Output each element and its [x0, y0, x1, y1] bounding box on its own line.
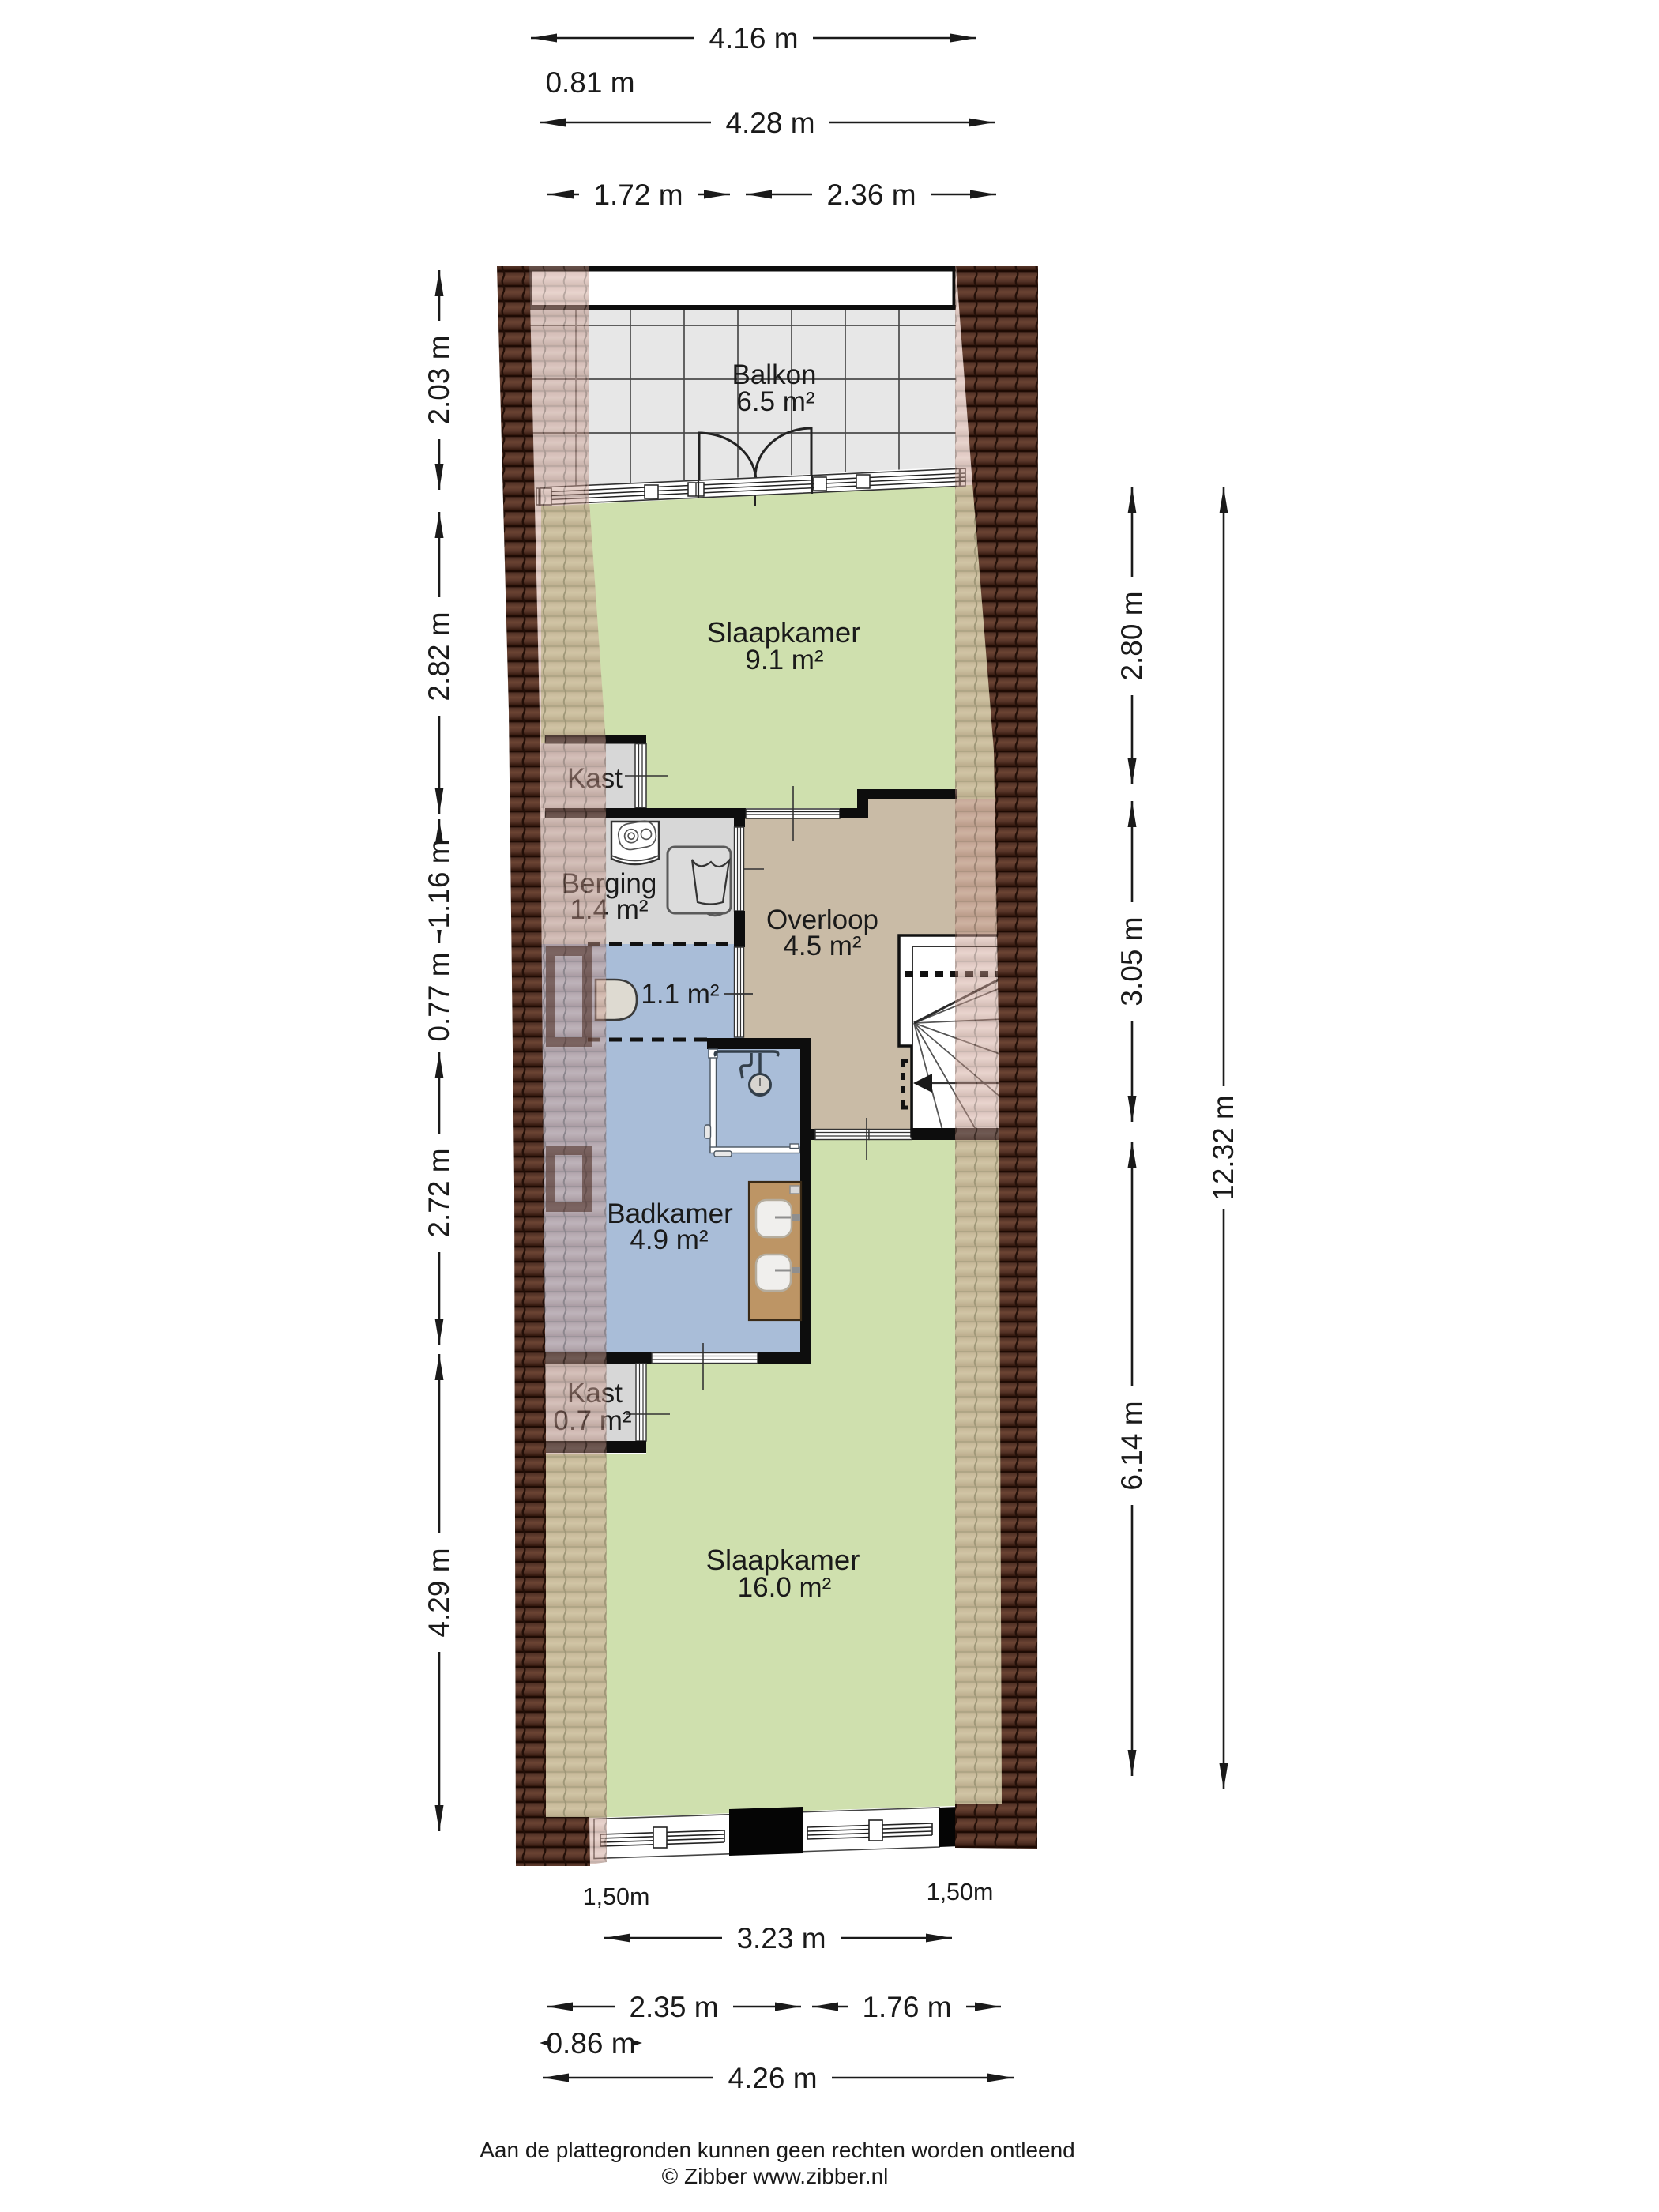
- svg-text:4.9 m²: 4.9 m²: [630, 1224, 708, 1255]
- svg-text:3.23 m: 3.23 m: [736, 1922, 826, 1954]
- svg-text:2.82 m: 2.82 m: [423, 611, 455, 701]
- svg-text:0.81 m: 0.81 m: [545, 66, 634, 99]
- svg-text:© Zibber www.zibber.nl: © Zibber www.zibber.nl: [662, 2164, 889, 2188]
- svg-text:1.72 m: 1.72 m: [593, 179, 683, 211]
- svg-text:2.36 m: 2.36 m: [826, 179, 916, 211]
- svg-text:6.5 m²: 6.5 m²: [736, 386, 814, 417]
- svg-text:2.72 m: 2.72 m: [423, 1148, 455, 1237]
- svg-text:1,50m: 1,50m: [583, 1883, 650, 1910]
- svg-text:Slaapkamer: Slaapkamer: [707, 616, 861, 649]
- svg-text:4.16 m: 4.16 m: [709, 22, 798, 55]
- svg-text:6.14 m: 6.14 m: [1115, 1401, 1148, 1490]
- svg-text:2.80 m: 2.80 m: [1115, 591, 1148, 680]
- svg-text:1.76 m: 1.76 m: [862, 1991, 951, 2023]
- svg-text:4.28 m: 4.28 m: [725, 107, 814, 139]
- svg-text:0.77 m: 0.77 m: [423, 952, 455, 1041]
- svg-text:4.29 m: 4.29 m: [423, 1548, 455, 1637]
- svg-text:Aan de plattegronden kunnen ge: Aan de plattegronden kunnen geen rechten…: [480, 2138, 1074, 2162]
- svg-text:2.03 m: 2.03 m: [423, 335, 455, 424]
- svg-text:4.26 m: 4.26 m: [728, 2062, 817, 2094]
- svg-text:16.0 m²: 16.0 m²: [738, 1572, 832, 1603]
- svg-text:2.35 m: 2.35 m: [629, 1991, 718, 2023]
- svg-text:9.1 m²: 9.1 m²: [745, 645, 823, 675]
- svg-text:0.86 m: 0.86 m: [546, 2027, 635, 2060]
- svg-text:3.05 m: 3.05 m: [1115, 916, 1148, 1006]
- svg-text:1,50m: 1,50m: [927, 1879, 994, 1905]
- svg-text:1.1 m²: 1.1 m²: [641, 979, 719, 1010]
- svg-text:4.5 m²: 4.5 m²: [783, 931, 861, 961]
- svg-text:12.32 m: 12.32 m: [1207, 1095, 1240, 1201]
- svg-text:Slaapkamer: Slaapkamer: [706, 1544, 860, 1576]
- svg-text:1.16 m: 1.16 m: [423, 839, 455, 928]
